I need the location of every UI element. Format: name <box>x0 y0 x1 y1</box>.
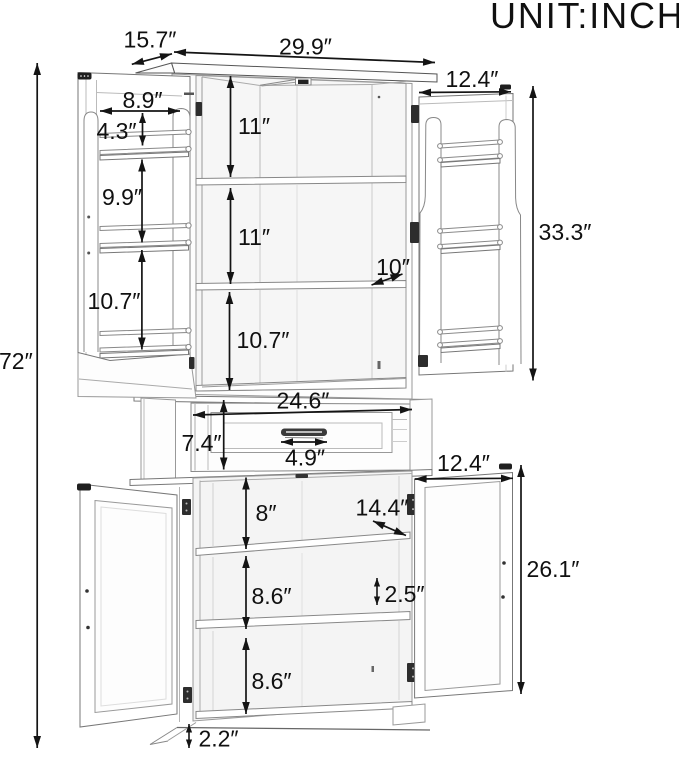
svg-text:29.9″: 29.9″ <box>279 34 332 60</box>
svg-text:14.4″: 14.4″ <box>356 495 409 521</box>
svg-text:11″: 11″ <box>238 224 270 250</box>
svg-text:UNIT:INCH: UNIT:INCH <box>490 0 679 36</box>
svg-text:12.4″: 12.4″ <box>446 66 499 92</box>
svg-text:15.7″: 15.7″ <box>124 27 177 53</box>
svg-text:26.1″: 26.1″ <box>527 556 580 582</box>
svg-text:33.3″: 33.3″ <box>539 219 592 245</box>
svg-text:12.4″: 12.4″ <box>437 450 490 476</box>
svg-text:10.7″: 10.7″ <box>88 288 141 314</box>
svg-text:2.5″: 2.5″ <box>384 581 424 607</box>
svg-text:8″: 8″ <box>256 500 277 526</box>
svg-text:8.6″: 8.6″ <box>251 668 291 694</box>
svg-text:4.9″: 4.9″ <box>285 445 325 471</box>
svg-text:4.3″: 4.3″ <box>96 118 136 144</box>
svg-text:10″: 10″ <box>376 254 410 280</box>
svg-text:2.2″: 2.2″ <box>198 726 238 752</box>
svg-text:24.6″: 24.6″ <box>277 388 330 414</box>
svg-text:8.9″: 8.9″ <box>122 87 162 113</box>
svg-text:10.7″: 10.7″ <box>237 327 290 353</box>
svg-text:72″: 72″ <box>0 348 33 374</box>
svg-text:7.4″: 7.4″ <box>181 430 221 456</box>
svg-text:9.9″: 9.9″ <box>102 184 142 210</box>
svg-text:8.6″: 8.6″ <box>251 583 291 609</box>
svg-text:11″: 11″ <box>238 113 270 139</box>
